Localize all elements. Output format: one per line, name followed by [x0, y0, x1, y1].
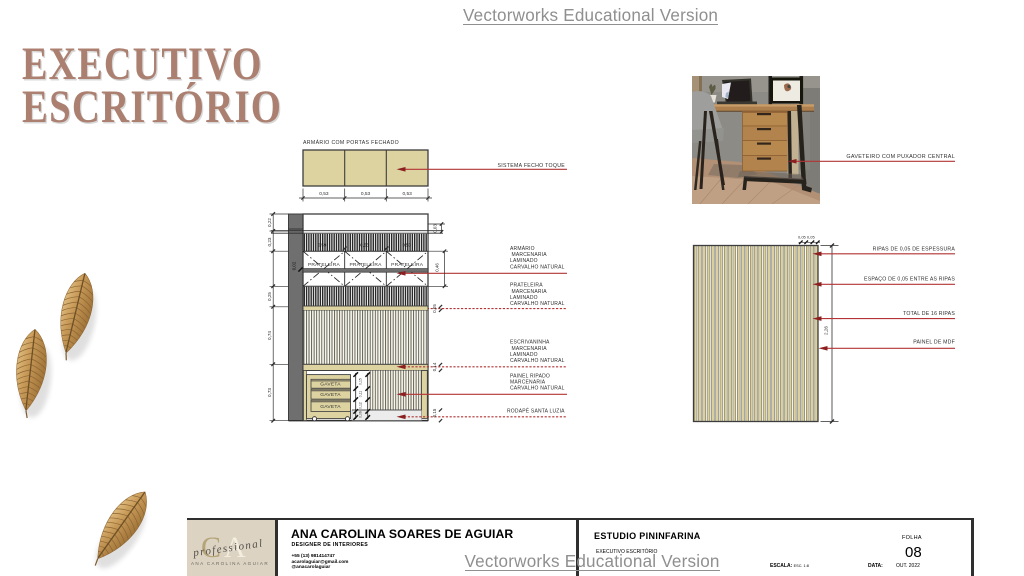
svg-text:0,53: 0,53 [403, 191, 413, 197]
svg-text:0,73: 0,73 [267, 388, 272, 397]
svg-text:LAMINADO: LAMINADO [510, 352, 538, 358]
svg-text:0,06: 0,06 [359, 411, 363, 418]
svg-text:0,25: 0,25 [267, 292, 272, 301]
svg-text:0,53: 0,53 [360, 243, 369, 248]
svg-text:ARMÁRIO COM PORTAS FECHADO: ARMÁRIO COM PORTAS FECHADO [303, 139, 399, 146]
svg-text:PRATELEIRA: PRATELEIRA [349, 262, 382, 268]
svg-text:CARVALHO NATURAL: CARVALHO NATURAL [510, 386, 565, 392]
svg-text:PAINEL RIPADO: PAINEL RIPADO [510, 373, 550, 379]
svg-text:0,05: 0,05 [432, 304, 437, 313]
svg-text:0,02: 0,02 [292, 261, 297, 270]
svg-text:CARVALHO NATURAL: CARVALHO NATURAL [510, 301, 565, 307]
svg-text:MARCENARIA: MARCENARIA [512, 346, 548, 352]
svg-text:0,12: 0,12 [359, 402, 363, 409]
svg-text:2,26: 2,26 [824, 326, 829, 335]
svg-text:0,53: 0,53 [402, 243, 411, 248]
svg-text:MARCENARIA: MARCENARIA [512, 252, 548, 258]
svg-text:ESPAÇO DE 0,05 ENTRE AS RIPAS: ESPAÇO DE 0,05 ENTRE AS RIPAS [864, 277, 955, 283]
svg-text:ESCRIVANINHA: ESCRIVANINHA [510, 340, 550, 346]
svg-text:RIPAS DE 0,05 DE ESPESSURA: RIPAS DE 0,05 DE ESPESSURA [873, 246, 956, 252]
svg-text:0,46: 0,46 [435, 263, 440, 272]
svg-text:GAVETA: GAVETA [320, 392, 341, 398]
svg-text:PAINEL DE MDF: PAINEL DE MDF [913, 339, 955, 345]
svg-text:PRATELEIRA: PRATELEIRA [510, 283, 543, 289]
svg-text:0,22: 0,22 [267, 218, 272, 227]
svg-text:GAVETA: GAVETA [320, 404, 341, 410]
svg-text:0,59: 0,59 [318, 243, 327, 248]
svg-text:0,14: 0,14 [432, 362, 437, 371]
svg-text:GAVETA: GAVETA [320, 382, 341, 388]
svg-text:0,74: 0,74 [267, 331, 272, 340]
svg-text:GAVETEIRO COM PUXADOR CENTRAL: GAVETEIRO COM PUXADOR CENTRAL [846, 154, 955, 160]
svg-text:0,53: 0,53 [361, 191, 371, 197]
svg-text:TOTAL DE 16 RIPAS: TOTAL DE 16 RIPAS [903, 311, 955, 317]
svg-text:0,03: 0,03 [433, 224, 438, 233]
svg-text:CARVALHO NATURAL: CARVALHO NATURAL [510, 358, 565, 364]
svg-text:MARCENARIA: MARCENARIA [510, 380, 546, 386]
svg-text:CARVALHO NATURAL: CARVALHO NATURAL [510, 264, 565, 270]
svg-text:ARMÁRIO: ARMÁRIO [510, 245, 535, 252]
svg-text:0,15: 0,15 [432, 408, 437, 417]
svg-text:PRATELEIRA: PRATELEIRA [308, 262, 341, 268]
svg-text:MARCENARIA: MARCENARIA [512, 289, 548, 295]
svg-text:0,23: 0,23 [267, 237, 272, 246]
svg-text:LAMINADO: LAMINADO [510, 295, 538, 301]
svg-text:0,53: 0,53 [319, 191, 329, 197]
svg-text:0,05 0,05: 0,05 0,05 [798, 235, 815, 240]
svg-text:SISTEMA FECHO TOQUE: SISTEMA FECHO TOQUE [498, 163, 566, 169]
svg-text:0,15: 0,15 [359, 378, 363, 385]
svg-text:PRATELEIRA: PRATELEIRA [391, 262, 424, 268]
svg-text:0,11: 0,11 [359, 391, 363, 397]
svg-text:RODAPÉ SANTA LUZIA: RODAPÉ SANTA LUZIA [507, 408, 565, 415]
svg-text:LAMINADO: LAMINADO [510, 258, 538, 264]
